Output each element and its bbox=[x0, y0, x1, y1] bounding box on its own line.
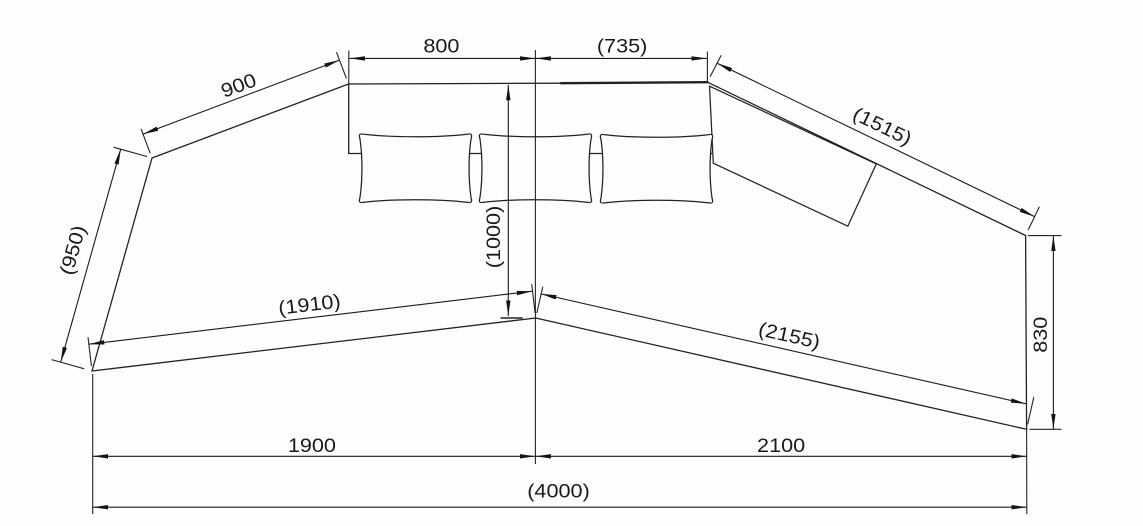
svg-text:(735): (735) bbox=[597, 35, 648, 57]
svg-text:830: 830 bbox=[1030, 317, 1052, 353]
svg-text:1900: 1900 bbox=[288, 435, 336, 457]
svg-text:(1000): (1000) bbox=[483, 206, 505, 269]
svg-text:(4000): (4000) bbox=[527, 480, 590, 502]
svg-text:2100: 2100 bbox=[757, 435, 805, 457]
svg-text:800: 800 bbox=[423, 35, 459, 57]
